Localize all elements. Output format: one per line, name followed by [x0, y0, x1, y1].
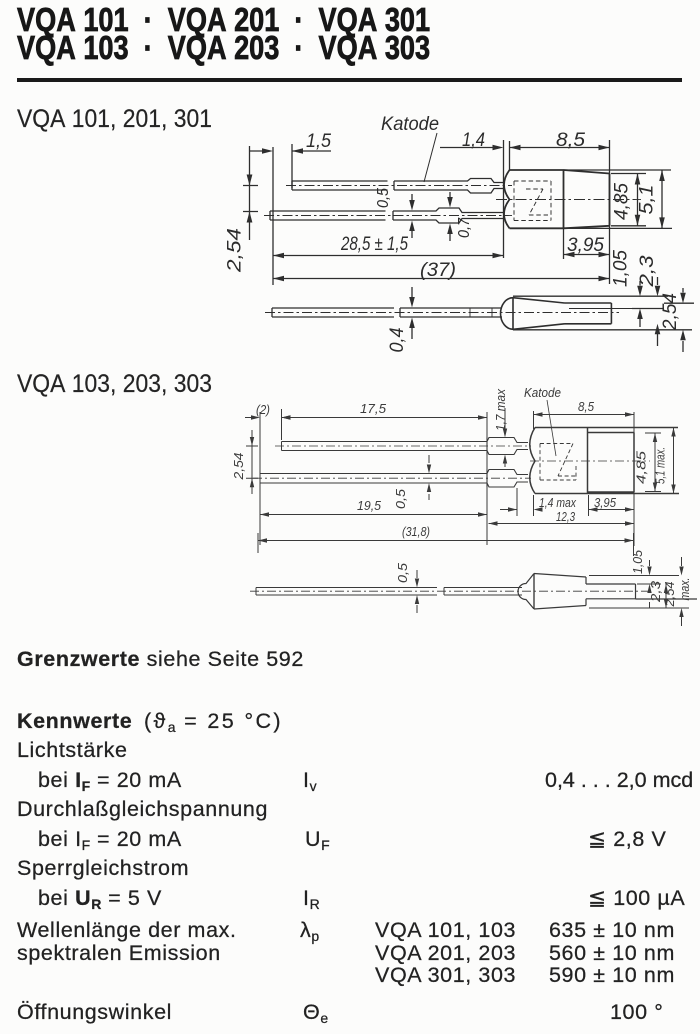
- svg-text:0,7: 0,7: [456, 217, 473, 238]
- svg-text:19,5: 19,5: [357, 498, 382, 513]
- svg-text:1,05: 1,05: [630, 549, 645, 574]
- svg-text:0,4: 0,4: [386, 327, 408, 352]
- svg-text:0,5: 0,5: [393, 488, 408, 509]
- svg-text:5,1: 5,1: [636, 185, 658, 215]
- svg-text:max.: max.: [677, 578, 692, 601]
- svg-text:17,5: 17,5: [360, 401, 387, 416]
- svg-text:1,4 max: 1,4 max: [539, 495, 576, 510]
- svg-text:2,54: 2,54: [662, 582, 677, 608]
- svg-text:0,5: 0,5: [375, 188, 392, 208]
- svg-text:(37): (37): [420, 259, 456, 281]
- svg-text:2,54: 2,54: [224, 228, 246, 273]
- svg-text:Katode: Katode: [524, 385, 561, 400]
- svg-text:Katode: Katode: [381, 113, 439, 135]
- svg-text:4,85: 4,85: [611, 183, 633, 220]
- svg-text:5,1 max.: 5,1 max.: [653, 447, 668, 484]
- svg-text:1,5: 1,5: [306, 130, 331, 152]
- svg-text:1,7 max: 1,7 max: [493, 389, 508, 431]
- svg-text:8,5: 8,5: [578, 399, 595, 414]
- svg-text:28,5 ± 1,5: 28,5 ± 1,5: [340, 233, 408, 255]
- svg-text:2,54: 2,54: [659, 293, 681, 331]
- svg-text:(2): (2): [256, 402, 270, 417]
- svg-text:12,3: 12,3: [556, 509, 576, 524]
- svg-text:(31,8): (31,8): [402, 524, 430, 539]
- svg-text:2,3: 2,3: [636, 255, 658, 287]
- svg-text:2,3: 2,3: [648, 580, 663, 603]
- svg-text:0,5: 0,5: [395, 562, 410, 583]
- svg-text:2,54: 2,54: [231, 453, 246, 481]
- svg-text:4,85: 4,85: [634, 450, 649, 484]
- svg-text:1,05: 1,05: [610, 250, 632, 287]
